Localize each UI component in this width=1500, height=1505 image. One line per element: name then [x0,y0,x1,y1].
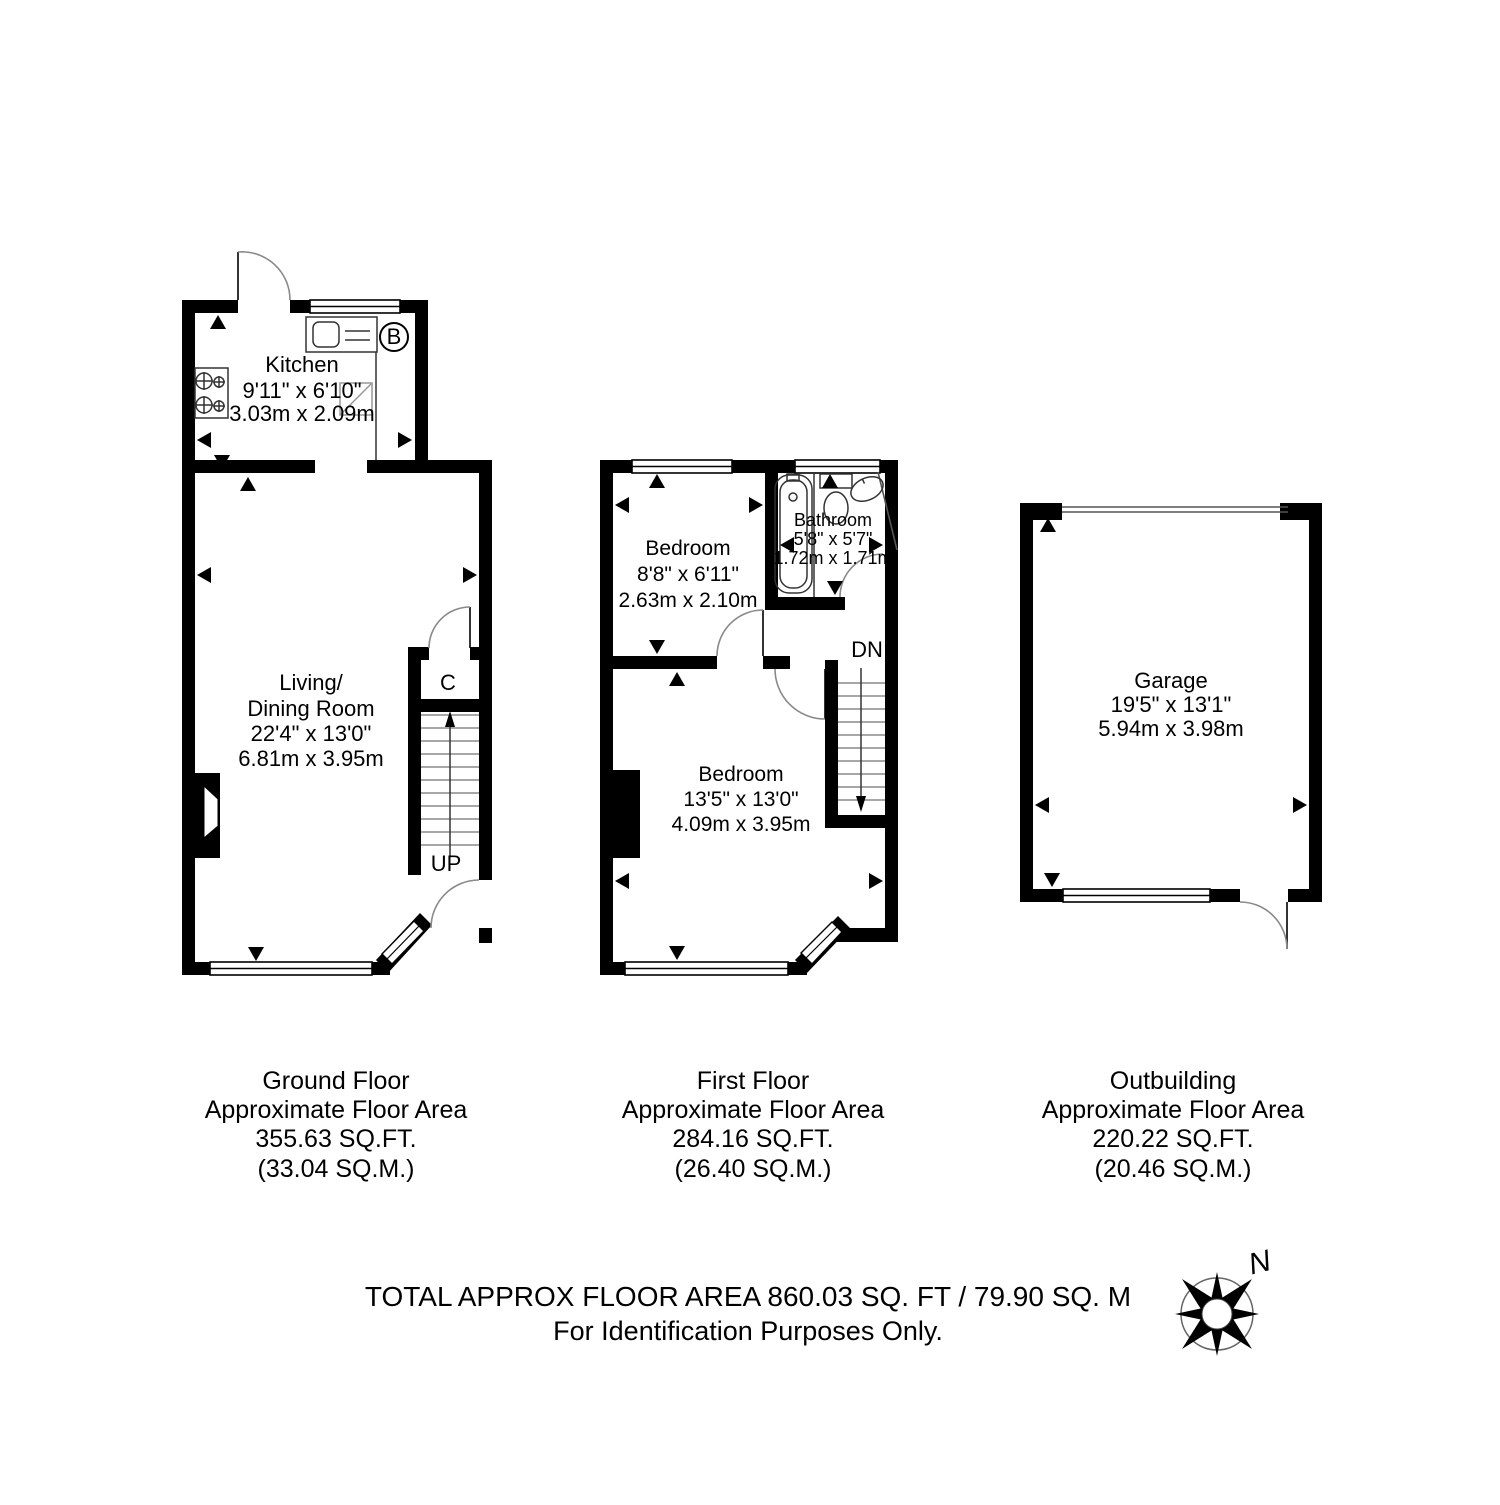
outbuilding-caption: Outbuilding Approximate Floor Area 220.2… [1042,1067,1305,1183]
ground-floor-caption: Ground Floor Approximate Floor Area 355.… [205,1067,468,1183]
outbuilding-sqft: 220.22 SQ.FT. [1092,1125,1253,1153]
floor-captions: Ground Floor Approximate Floor Area 355.… [205,1067,1305,1183]
living-imperial: 22'4" x 13'0" [251,721,372,746]
living-name-2: Dining Room [247,696,374,721]
ground-floor-name: Ground Floor [262,1067,409,1095]
first-floor-plan: DN Bedroom 8'8" x 6'11" 2.63m x 2.10m Ba… [600,460,898,975]
ground-floor-room-labels: Kitchen 9'11" x 6'10" 3.03m x 2.09m Livi… [229,352,384,771]
compass-center [1202,1299,1232,1329]
bathroom-window [795,460,880,473]
bedroom1-name: Bedroom [645,537,730,560]
bathroom-metric: 1.72m x 1.71m [773,548,892,568]
ground-floor-sqft: 355.63 SQ.FT. [255,1125,416,1153]
basin [847,472,887,506]
first-floor-sqm: (26.40 SQ.M.) [675,1155,832,1183]
floorplan-page: B UP C [0,0,1500,1500]
compass-rose: N [1175,1244,1275,1356]
kitchen-imperial: 9'11" x 6'10" [242,378,361,403]
garage-window [1063,889,1210,902]
bedroom2-metric: 4.09m x 3.95m [672,813,811,836]
outbuilding-sqm: (20.46 SQ.M.) [1095,1155,1252,1183]
garage-metric: 5.94m x 3.98m [1098,716,1244,741]
bedroom1-door [717,610,763,656]
bathroom-imperial: 5'8" x 5'7" [794,529,873,549]
living-room-bay-window-angled [376,913,432,973]
bedroom2-imperial: 13'5" x 13'0" [683,788,798,811]
bedroom2-bay-window-front [625,962,788,975]
bedroom2-door [775,669,825,719]
cupboard-marker: C [440,670,456,695]
ground-floor-plan: B UP C [182,252,492,975]
bedroom1-imperial: 8'8" x 6'11" [637,563,739,586]
first-floor-caption: First Floor Approximate Floor Area 284.1… [622,1067,885,1183]
compass-north-label: N [1245,1244,1274,1281]
stairs-up [421,711,479,856]
sink-unit [306,317,377,352]
living-room-bay-window-front [210,962,372,975]
hob [195,368,228,418]
living-metric: 6.81m x 3.95m [238,746,384,771]
footer: TOTAL APPROX FLOOR AREA 860.03 SQ. FT / … [365,1281,1131,1346]
garage-plan: Garage 19'5" x 13'1" 5.94m x 3.98m [1020,503,1322,949]
stairs-up-label: UP [431,851,462,876]
front-door [431,880,479,928]
first-floor-name: First Floor [697,1067,810,1095]
stairs-down [838,668,885,812]
floorplan-svg: B UP C [0,0,1500,1500]
ground-floor-area-label: Approximate Floor Area [205,1096,468,1124]
total-area-text: TOTAL APPROX FLOOR AREA 860.03 SQ. FT / … [365,1281,1131,1312]
bedroom2-bay-window-angled [795,916,850,973]
first-floor-sqft: 284.16 SQ.FT. [672,1125,833,1153]
kitchen-window [310,300,400,313]
living-name-1: Living/ [279,670,343,695]
stairs-down-arrow [856,796,866,812]
kitchen-name: Kitchen [265,352,338,377]
bathroom-name: Bathroom [794,510,872,530]
disclaimer-text: For Identification Purposes Only. [553,1316,943,1346]
bedroom1-window [632,460,732,473]
kitchen-back-door [238,252,290,300]
first-floor-area-label: Approximate Floor Area [622,1096,885,1124]
stairs-up-arrow [445,711,455,727]
bedroom2-name: Bedroom [698,763,783,786]
stairs-down-label: DN [851,637,883,662]
ground-floor-sqm: (33.04 SQ.M.) [258,1155,415,1183]
bedroom1-metric: 2.63m x 2.10m [619,589,758,612]
garage-imperial: 19'5" x 13'1" [1111,692,1232,717]
outbuilding-name: Outbuilding [1110,1067,1236,1095]
kitchen-metric: 3.03m x 2.09m [229,401,375,426]
garage-side-door [1240,902,1287,949]
boiler-marker: B [387,324,402,349]
garage-name: Garage [1134,668,1207,693]
garage-door-top [1062,507,1288,512]
outbuilding-area-label: Approximate Floor Area [1042,1096,1305,1124]
garage-room-labels: Garage 19'5" x 13'1" 5.94m x 3.98m [1098,668,1244,741]
cupboard-door [429,607,470,648]
